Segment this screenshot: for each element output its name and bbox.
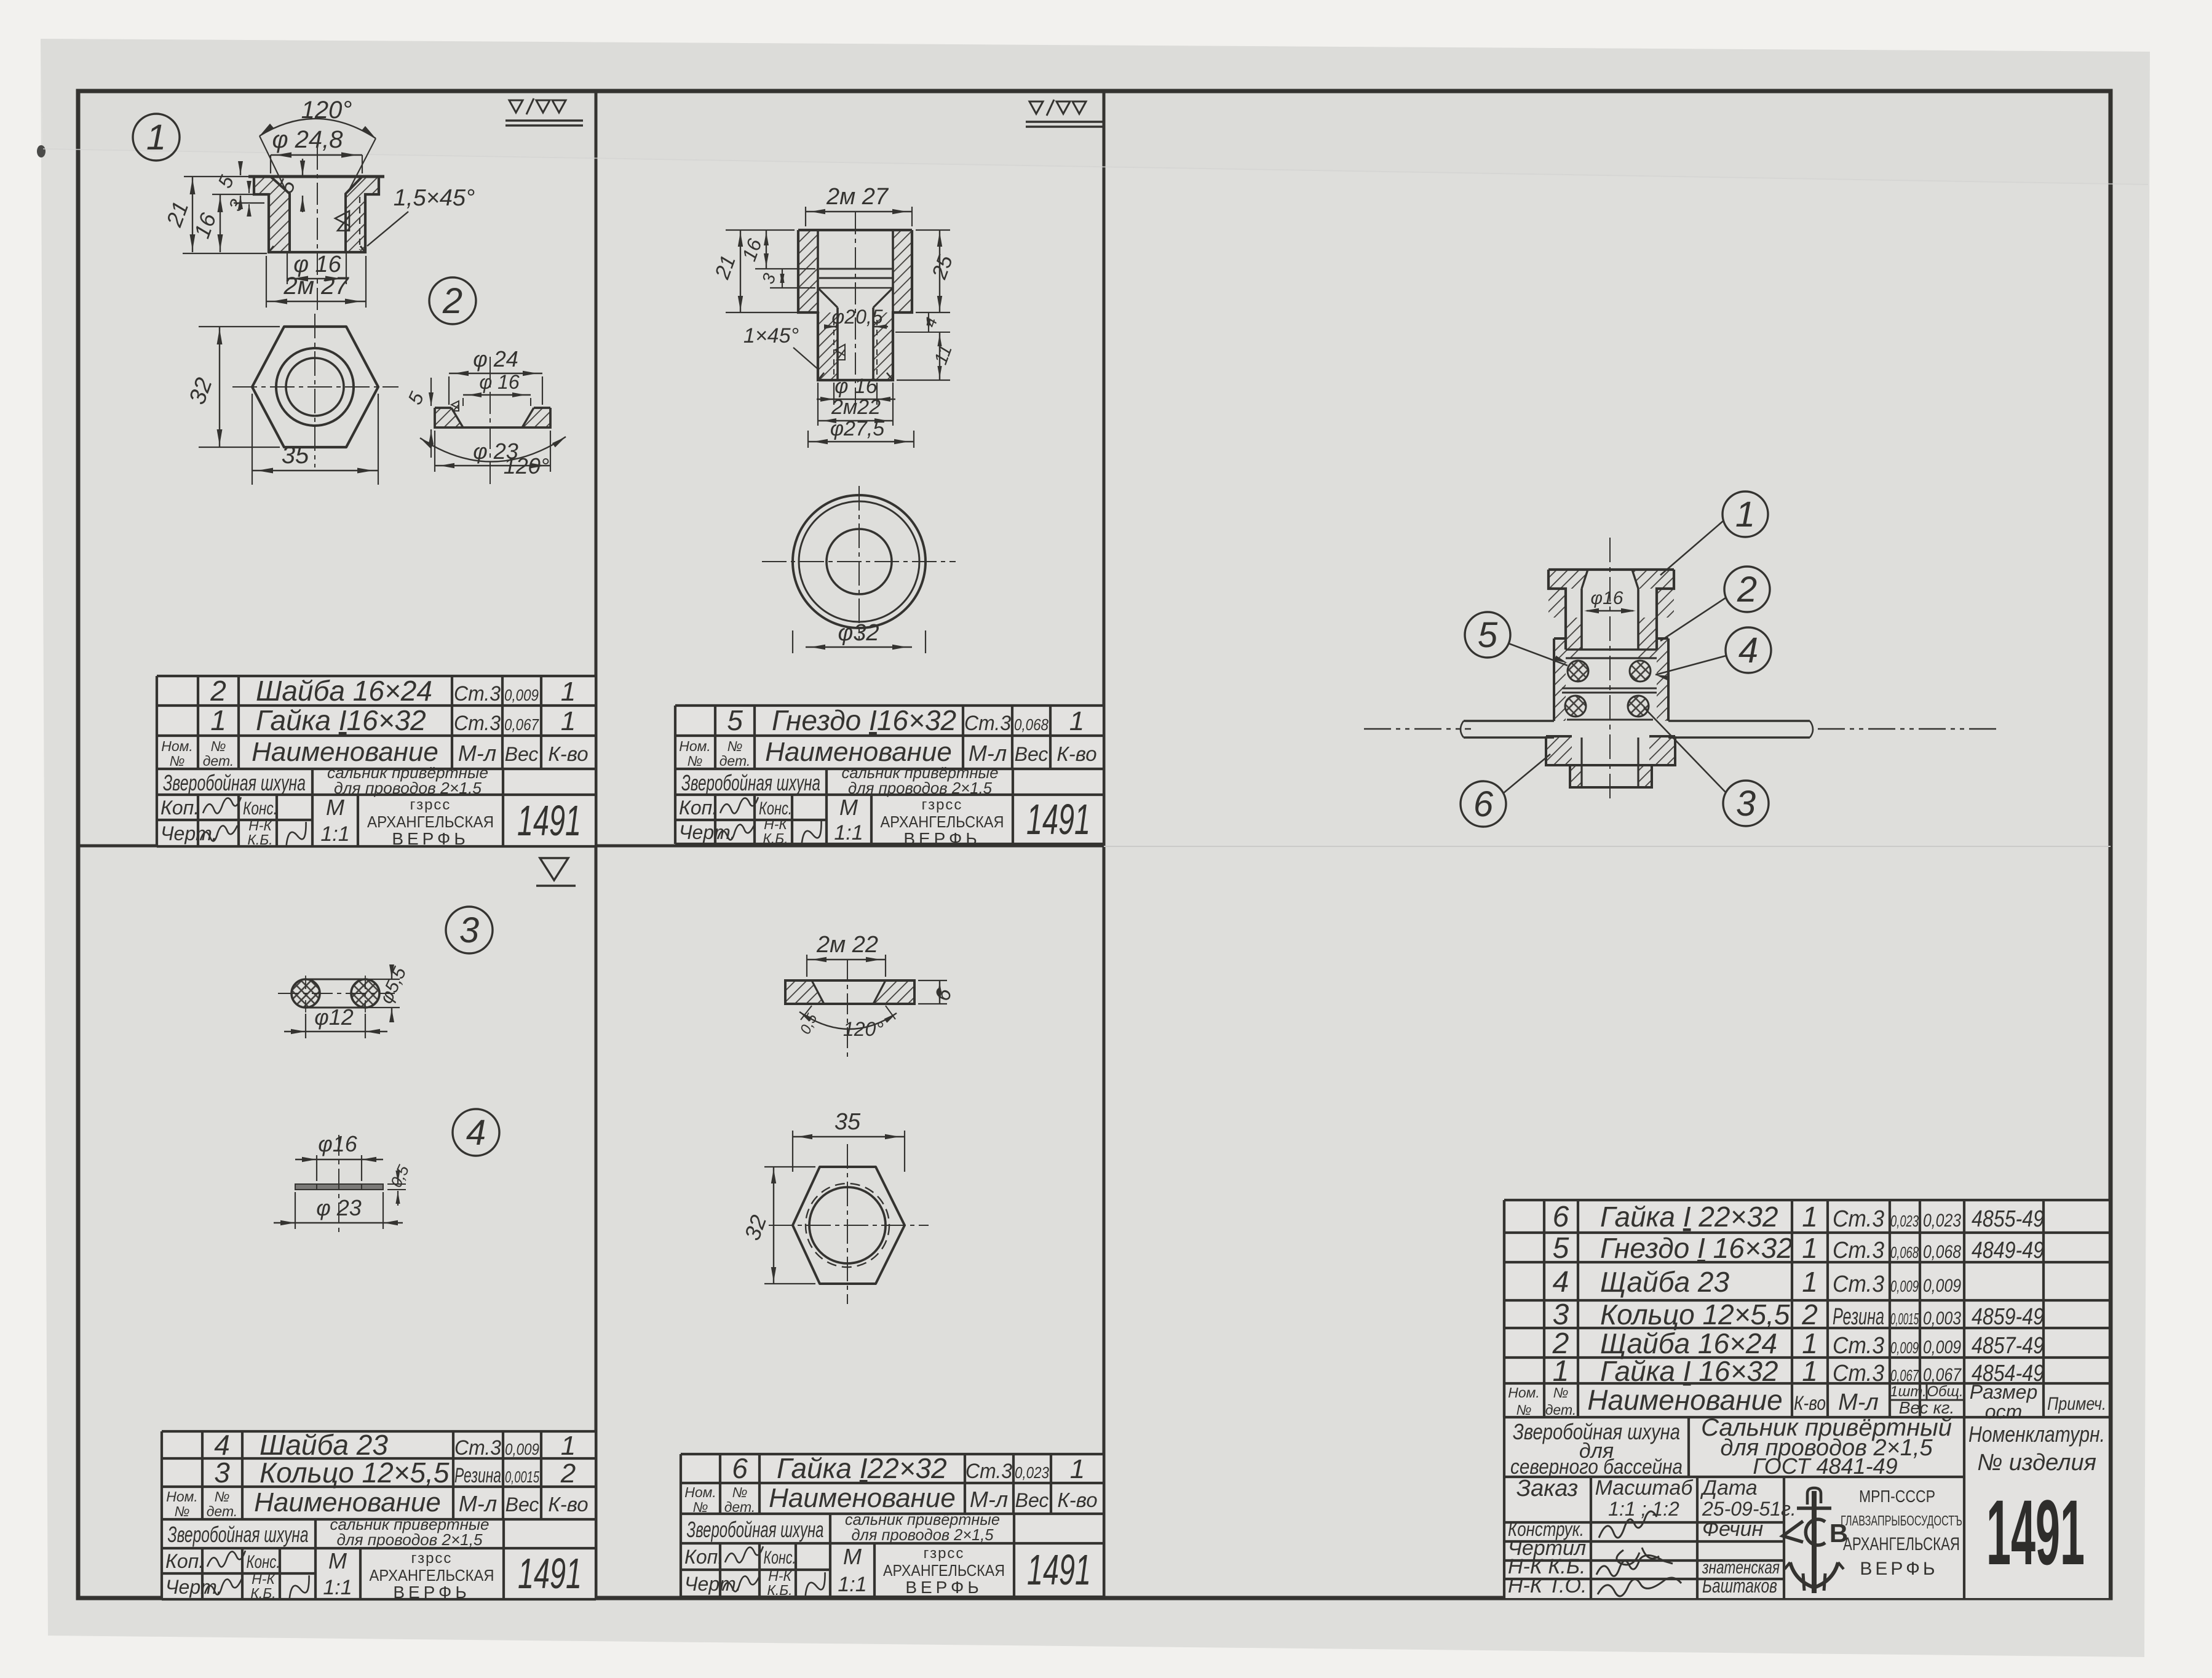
svg-text:для проводов 2×1,5: для проводов 2×1,5	[337, 1530, 483, 1549]
svg-text:1: 1	[1802, 1201, 1818, 1233]
svg-text:4: 4	[466, 1113, 486, 1153]
svg-text:1: 1	[210, 704, 226, 736]
svg-text:1: 1	[1735, 495, 1755, 535]
svg-text:Конс.: Конс.	[247, 1552, 280, 1572]
svg-text:Номенклатурн.: Номенклатурн.	[1968, 1422, 2105, 1447]
svg-text:ВЕРФЬ: ВЕРФЬ	[392, 829, 469, 848]
svg-text:Н-К Т.О.: Н-К Т.О.	[1508, 1574, 1587, 1597]
svg-text:0,009: 0,009	[504, 686, 539, 704]
svg-text:Зверобойная шхуна: Зверобойная шхуна	[687, 1517, 824, 1542]
svg-text:120°: 120°	[843, 1018, 884, 1040]
svg-text:Кольцо 12×5,5: Кольцо 12×5,5	[260, 1457, 450, 1489]
svg-text:6: 6	[1473, 784, 1494, 824]
svg-text:1шт.: 1шт.	[1890, 1383, 1927, 1400]
svg-text:Ст.3: Ст.3	[1833, 1206, 1884, 1232]
svg-text:Резина: Резина	[1833, 1304, 1884, 1330]
svg-text:0,068: 0,068	[1923, 1242, 1961, 1262]
svg-text:35: 35	[282, 442, 309, 469]
svg-text:Щайба 23: Щайба 23	[1600, 1266, 1729, 1298]
svg-text:№: №	[732, 1484, 748, 1500]
svg-text:Ст.3: Ст.3	[1833, 1271, 1884, 1297]
svg-text:№: №	[215, 1489, 230, 1505]
svg-text:Масштаб: Масштаб	[1595, 1476, 1694, 1500]
svg-text:25-09-51г.: 25-09-51г.	[1702, 1498, 1796, 1520]
svg-text:Зверобойная шхуна: Зверобойная шхуна	[163, 770, 306, 795]
svg-text:ГОСТ 4841-49: ГОСТ 4841-49	[1753, 1453, 1897, 1479]
svg-text:1: 1	[1069, 706, 1084, 736]
svg-text:Наименование: Наименование	[254, 1487, 441, 1517]
svg-text:4849-49: 4849-49	[1972, 1238, 2044, 1263]
svg-text:4855-49: 4855-49	[1972, 1206, 2044, 1232]
svg-text:АРХАНГЕЛЬСКАЯ: АРХАНГЕЛЬСКАЯ	[367, 813, 494, 831]
svg-text:0,067: 0,067	[1890, 1366, 1919, 1385]
svg-text:К-во: К-во	[1794, 1392, 1826, 1414]
svg-text:5: 5	[1478, 615, 1498, 655]
svg-text:2м22: 2м22	[831, 396, 881, 419]
svg-text:Гайка I 16×32: Гайка I 16×32	[1600, 1355, 1778, 1387]
svg-text:Вес: Вес	[505, 1493, 539, 1516]
svg-text:для проводов 2×1,5: для проводов 2×1,5	[334, 779, 482, 797]
svg-text:1491: 1491	[1986, 1481, 2085, 1584]
svg-text:К.Б.: К.Б.	[763, 830, 788, 846]
svg-text:№: №	[1516, 1402, 1532, 1418]
svg-text:М-л: М-л	[458, 741, 496, 766]
svg-text:1: 1	[1553, 1355, 1569, 1388]
svg-text:МРП-СССР: МРП-СССР	[1859, 1487, 1935, 1506]
svg-text:АРХАНГЕЛЬСКАЯ: АРХАНГЕЛЬСКАЯ	[1843, 1534, 1960, 1554]
svg-text:6: 6	[1553, 1201, 1569, 1233]
svg-text:Черт.: Черт.	[165, 1576, 222, 1598]
svg-text:М: М	[839, 795, 858, 820]
svg-text:Ст.3: Ст.3	[454, 712, 501, 735]
svg-text:0,067: 0,067	[504, 715, 539, 734]
svg-text:Ном.: Ном.	[161, 738, 193, 754]
svg-text:1: 1	[561, 1431, 576, 1461]
svg-text:Черт.: Черт.	[684, 1573, 741, 1595]
svg-text:2м 22: 2м 22	[816, 932, 878, 958]
svg-text:дет.: дет.	[724, 1499, 756, 1515]
svg-text:1: 1	[1070, 1454, 1085, 1484]
svg-text:3: 3	[214, 1457, 230, 1489]
svg-text:№: №	[693, 1499, 708, 1515]
svg-text:К.Б.: К.Б.	[250, 1585, 276, 1601]
svg-text:АРХАНГЕЛЬСКАЯ: АРХАНГЕЛЬСКАЯ	[881, 813, 1004, 831]
svg-text:4: 4	[1738, 630, 1758, 670]
svg-text:4857-49: 4857-49	[1972, 1333, 2044, 1359]
svg-text:0,0015: 0,0015	[505, 1468, 539, 1486]
svg-text:Гайка I16×32: Гайка I16×32	[256, 704, 426, 736]
svg-text:0,003: 0,003	[1923, 1308, 1961, 1329]
svg-text:0,009: 0,009	[1890, 1277, 1919, 1295]
svg-text:φ32: φ32	[838, 620, 879, 646]
svg-text:№: №	[211, 738, 226, 754]
svg-text:Ст.3: Ст.3	[1833, 1333, 1884, 1359]
svg-text:Гайка I22×32: Гайка I22×32	[777, 1452, 947, 1484]
svg-text:35: 35	[834, 1109, 861, 1135]
svg-text:1491: 1491	[1027, 1546, 1091, 1594]
svg-text:φ 23: φ 23	[316, 1195, 362, 1220]
svg-text:2: 2	[560, 1458, 576, 1489]
svg-text:5: 5	[727, 704, 743, 736]
svg-text:№: №	[1553, 1385, 1569, 1401]
svg-text:№: №	[688, 753, 703, 769]
svg-text:1:1: 1:1	[834, 821, 863, 845]
svg-text:Ном.: Ном.	[679, 738, 711, 754]
svg-text:φ12: φ12	[314, 1004, 354, 1030]
svg-text:φ 16: φ 16	[834, 375, 878, 398]
svg-text:Ст.3: Ст.3	[1833, 1361, 1884, 1386]
svg-text:Ном.: Ном.	[684, 1484, 716, 1500]
svg-text:0,023: 0,023	[1923, 1211, 1961, 1231]
svg-text:φ20,5: φ20,5	[831, 306, 882, 328]
svg-text:Вес: Вес	[1015, 743, 1049, 765]
svg-text:Заказ: Заказ	[1516, 1476, 1578, 1501]
svg-text:1: 1	[1802, 1355, 1818, 1387]
svg-text:ВЕРФЬ: ВЕРФЬ	[903, 829, 980, 848]
svg-text:Наименование: Наименование	[769, 1483, 956, 1513]
svg-text:2: 2	[1737, 570, 1757, 610]
svg-text:0,009: 0,009	[1923, 1337, 1961, 1358]
svg-text:Ном.: Ном.	[1508, 1385, 1540, 1401]
svg-text:120°: 120°	[301, 97, 352, 124]
svg-text:ВЕРФЬ: ВЕРФЬ	[1860, 1559, 1938, 1579]
svg-text:5: 5	[1553, 1232, 1569, 1265]
svg-text:4: 4	[1553, 1266, 1569, 1298]
svg-text:Вес: Вес	[505, 743, 539, 765]
svg-text:1: 1	[146, 117, 166, 157]
svg-text:1:1: 1:1	[323, 1576, 352, 1599]
svg-text:2м 27: 2м 27	[826, 184, 889, 210]
svg-text:Конс.: Конс.	[764, 1548, 796, 1568]
svg-text:№: №	[170, 753, 185, 769]
svg-text:4859-49: 4859-49	[1972, 1304, 2044, 1330]
svg-text:Коп.: Коп.	[161, 797, 199, 819]
svg-text:2м 27: 2м 27	[283, 272, 349, 300]
svg-text:М: М	[328, 1548, 347, 1573]
svg-text:дет.: дет.	[1545, 1402, 1577, 1418]
svg-text:φ 24,8: φ 24,8	[272, 126, 343, 153]
svg-text:К-во: К-во	[1056, 742, 1096, 765]
svg-text:Шайба 16×24: Шайба 16×24	[256, 675, 432, 707]
svg-text:для проводов 2×1,5: для проводов 2×1,5	[852, 1525, 994, 1544]
svg-text:М-л: М-л	[459, 1491, 497, 1516]
svg-text:Примеч.: Примеч.	[2047, 1394, 2106, 1414]
svg-text:3: 3	[459, 910, 479, 950]
svg-text:Ном.: Ном.	[166, 1489, 198, 1505]
svg-text:0,0015: 0,0015	[1890, 1310, 1919, 1328]
svg-text:1491: 1491	[517, 797, 581, 845]
svg-text:Ст.3: Ст.3	[964, 712, 1011, 735]
svg-text:К-во: К-во	[1057, 1489, 1097, 1511]
svg-text:φ 16: φ 16	[479, 371, 520, 393]
svg-text:1: 1	[1802, 1232, 1818, 1264]
svg-text:Гайка I 22×32: Гайка I 22×32	[1600, 1201, 1778, 1233]
svg-text:гзрсс: гзрсс	[411, 1550, 453, 1567]
svg-text:Зверобойная шхуна: Зверобойная шхуна	[168, 1522, 309, 1547]
svg-text:Зверобойная шхуна: Зверобойная шхуна	[681, 770, 820, 795]
svg-text:3: 3	[1736, 784, 1756, 824]
svg-text:0,023: 0,023	[1015, 1463, 1049, 1482]
svg-text:К-во: К-во	[548, 742, 588, 765]
svg-text:φ16: φ16	[318, 1131, 358, 1156]
svg-text:1: 1	[1802, 1266, 1818, 1298]
svg-text:0,009: 0,009	[505, 1440, 539, 1458]
svg-text:1: 1	[561, 706, 576, 736]
svg-text:М: М	[843, 1544, 862, 1569]
svg-text:№: №	[175, 1503, 190, 1519]
svg-text:К.Б.: К.Б.	[247, 832, 272, 848]
svg-text:0,067: 0,067	[1923, 1365, 1962, 1385]
svg-text:Размер: Размер	[1970, 1381, 2037, 1403]
svg-text:Кольцо 12×5,5: Кольцо 12×5,5	[1600, 1298, 1790, 1330]
svg-text:АРХАНГЕЛЬСКАЯ: АРХАНГЕЛЬСКАЯ	[370, 1566, 494, 1585]
svg-text:0,068: 0,068	[1890, 1243, 1919, 1262]
svg-text:1,5×45°: 1,5×45°	[394, 185, 475, 211]
svg-text:120°: 120°	[504, 453, 549, 479]
svg-text:дет.: дет.	[203, 753, 234, 769]
svg-text:2: 2	[442, 281, 462, 321]
svg-text:АРХАНГЕЛЬСКАЯ: АРХАНГЕЛЬСКАЯ	[883, 1561, 1005, 1580]
svg-text:Ст.3: Ст.3	[965, 1460, 1012, 1483]
svg-text:Резина: Резина	[454, 1464, 501, 1487]
svg-text:дет.: дет.	[719, 753, 751, 769]
svg-text:Дата: Дата	[1700, 1476, 1758, 1500]
svg-text:К-во: К-во	[548, 1493, 588, 1516]
svg-text:φ16: φ16	[1591, 588, 1623, 608]
svg-text:М: М	[326, 795, 344, 820]
svg-text:гзрсс: гзрсс	[410, 797, 451, 813]
svg-text:3: 3	[1553, 1298, 1569, 1331]
svg-text:№: №	[727, 738, 743, 754]
svg-text:2: 2	[1801, 1298, 1818, 1330]
svg-text:К.Б.: К.Б.	[767, 1582, 792, 1598]
svg-text:0,068: 0,068	[1014, 715, 1049, 734]
svg-text:Вес: Вес	[1015, 1489, 1049, 1511]
svg-text:ВЕРФЬ: ВЕРФЬ	[905, 1578, 982, 1597]
svg-text:0,009: 0,009	[1890, 1338, 1919, 1357]
svg-text:ост: ост	[1985, 1401, 2022, 1423]
svg-text:Баштаков: Баштаков	[1702, 1575, 1777, 1597]
svg-text:Ст.3: Ст.3	[1833, 1238, 1884, 1263]
svg-text:1491: 1491	[1026, 795, 1090, 843]
svg-text:Гнездо I 16×32: Гнездо I 16×32	[1600, 1232, 1793, 1264]
svg-text:1:1: 1:1	[838, 1573, 866, 1596]
svg-text:Общ.: Общ.	[1927, 1383, 1963, 1400]
svg-text:1×45°: 1×45°	[743, 324, 799, 348]
svg-text:0,023: 0,023	[1890, 1212, 1919, 1230]
svg-text:φ 24: φ 24	[473, 346, 518, 372]
svg-text:Ст.3: Ст.3	[454, 1436, 501, 1460]
svg-text:гзрсс: гзрсс	[924, 1545, 965, 1562]
svg-text:М-л: М-л	[1838, 1390, 1879, 1415]
svg-text:2: 2	[210, 675, 226, 707]
svg-text:дет.: дет.	[207, 1503, 238, 1519]
svg-text:1:1: 1:1	[320, 822, 349, 846]
svg-text:0,009: 0,009	[1923, 1276, 1961, 1296]
svg-text:Коп.: Коп.	[684, 1546, 723, 1568]
svg-text:ГЛАВЗАПРЫБОСУДОСТЪ: ГЛАВЗАПРЫБОСУДОСТЪ	[1841, 1513, 1962, 1529]
svg-text:Фечин: Фечин	[1702, 1517, 1764, 1541]
svg-text:1:1 ; 1:2: 1:1 ; 1:2	[1608, 1498, 1679, 1520]
svg-text:Ст.3: Ст.3	[454, 682, 501, 706]
svg-text:Конс.: Конс.	[243, 798, 277, 819]
svg-text:М-л: М-л	[970, 1487, 1008, 1512]
svg-text:гзрсс: гзрсс	[922, 797, 963, 813]
svg-text:Коп.: Коп.	[165, 1550, 204, 1572]
svg-text:1491: 1491	[518, 1549, 582, 1597]
svg-text:Наименование: Наименование	[1587, 1384, 1782, 1416]
svg-text:М-л: М-л	[969, 741, 1007, 766]
svg-text:φ27,5: φ27,5	[830, 417, 884, 440]
svg-text:Черт.: Черт.	[679, 821, 735, 843]
svg-text:Наименование: Наименование	[765, 737, 952, 767]
svg-text:6: 6	[732, 1452, 748, 1484]
svg-text:1: 1	[561, 677, 576, 707]
svg-text:Наименование: Наименование	[252, 737, 438, 767]
svg-text:№ изделия: № изделия	[1977, 1450, 2096, 1476]
svg-text:для проводов 2×1,5: для проводов 2×1,5	[848, 779, 993, 797]
svg-text:Коп.: Коп.	[679, 797, 718, 819]
svg-text:ВЕРФЬ: ВЕРФЬ	[393, 1583, 470, 1602]
svg-text:Гнездо I16×32: Гнездо I16×32	[772, 704, 956, 736]
